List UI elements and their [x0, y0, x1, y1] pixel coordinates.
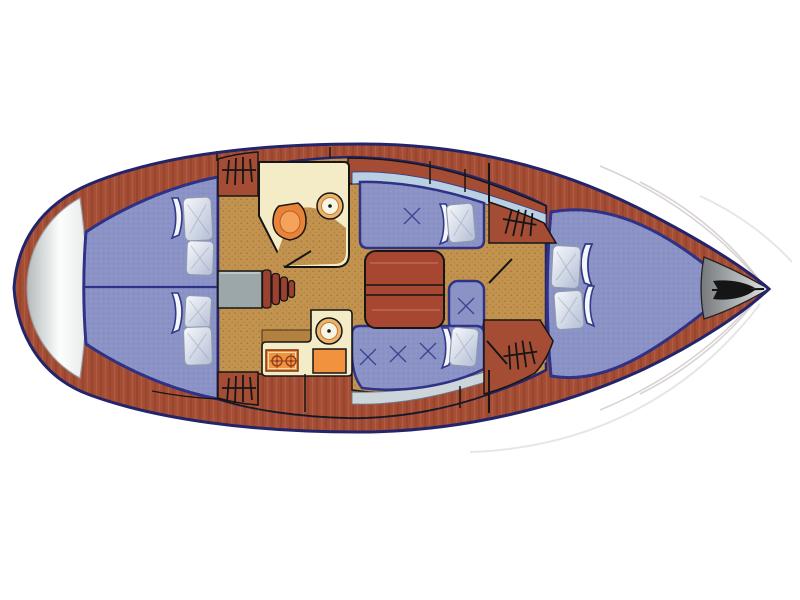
pillow-icon: [554, 290, 585, 330]
pillow-icon: [186, 241, 214, 276]
pillow-icon: [184, 295, 211, 328]
pillow-icon: [551, 245, 581, 288]
pillow-icon: [449, 327, 479, 367]
toilet-icon: [273, 203, 306, 240]
galley-sink-icon: [316, 318, 342, 344]
pillow-icon: [183, 197, 213, 242]
oven: [313, 349, 346, 373]
galley-shelf: [262, 330, 311, 343]
head-sink-icon: [317, 193, 343, 219]
saloon: [352, 182, 484, 390]
pillow-icon: [183, 327, 212, 366]
yacht-floor-plan-diagram: [0, 0, 800, 600]
two-burner-stove: [266, 350, 298, 371]
boat-floor-plan-page: [0, 0, 800, 600]
chart-table: [218, 271, 262, 308]
pillow-icon: [446, 203, 476, 243]
